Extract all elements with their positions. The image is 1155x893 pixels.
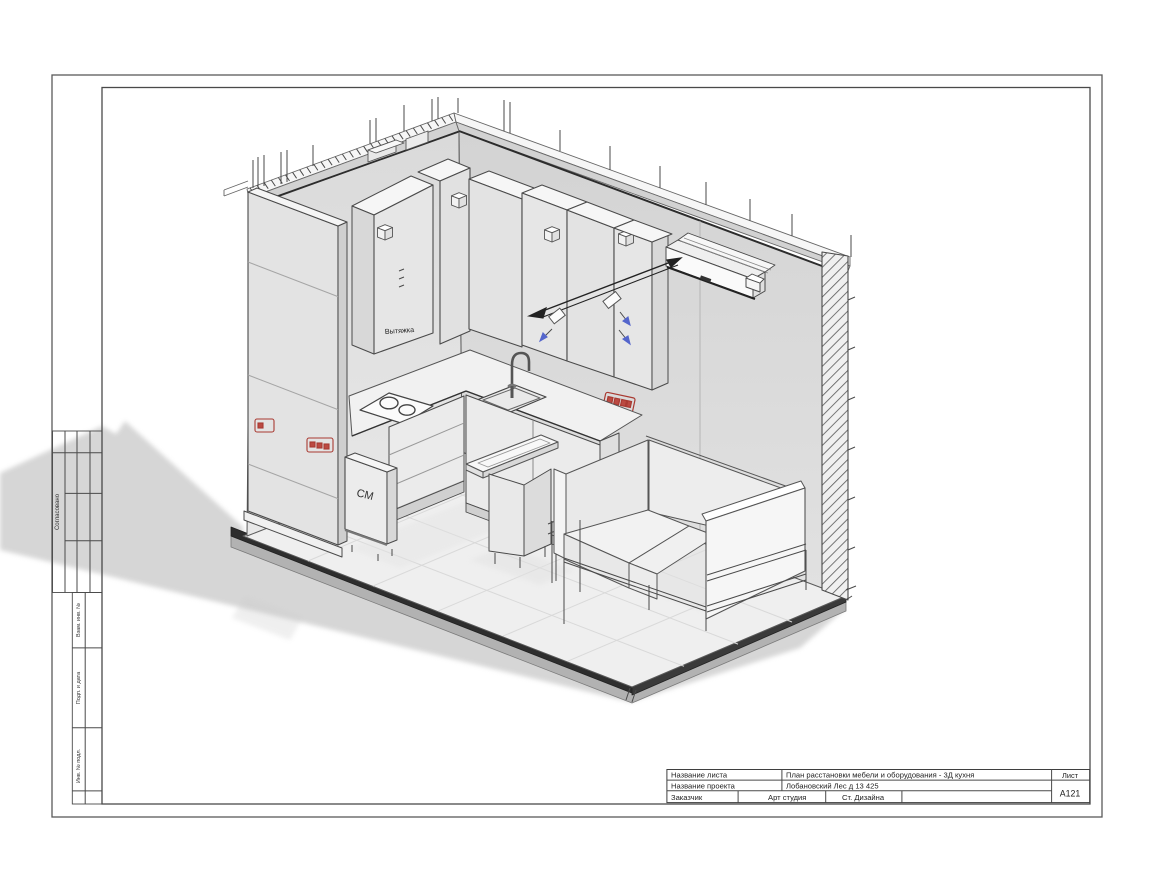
svg-text:Лобановский Лес д 13 425: Лобановский Лес д 13 425: [786, 781, 879, 790]
svg-text:А121: А121: [1060, 789, 1081, 799]
svg-text:Название проекта: Название проекта: [671, 781, 736, 790]
svg-text:План расстановки мебели и обор: План расстановки мебели и оборудования -…: [786, 771, 974, 780]
svg-text:Заказчик: Заказчик: [671, 793, 703, 802]
svg-text:Арт студия: Арт студия: [768, 793, 806, 802]
svg-text:Ст. Дизайна: Ст. Дизайна: [842, 793, 885, 802]
svg-text:Название листа: Название листа: [671, 771, 728, 780]
svg-text:Взам. инв. №: Взам. инв. №: [76, 603, 82, 637]
svg-text:Подп. и дата: Подп. и дата: [76, 671, 82, 704]
svg-text:Согласовано: Согласовано: [55, 493, 61, 530]
svg-text:Лист: Лист: [1062, 771, 1079, 780]
svg-text:Инв. № подл.: Инв. № подл.: [76, 748, 82, 783]
